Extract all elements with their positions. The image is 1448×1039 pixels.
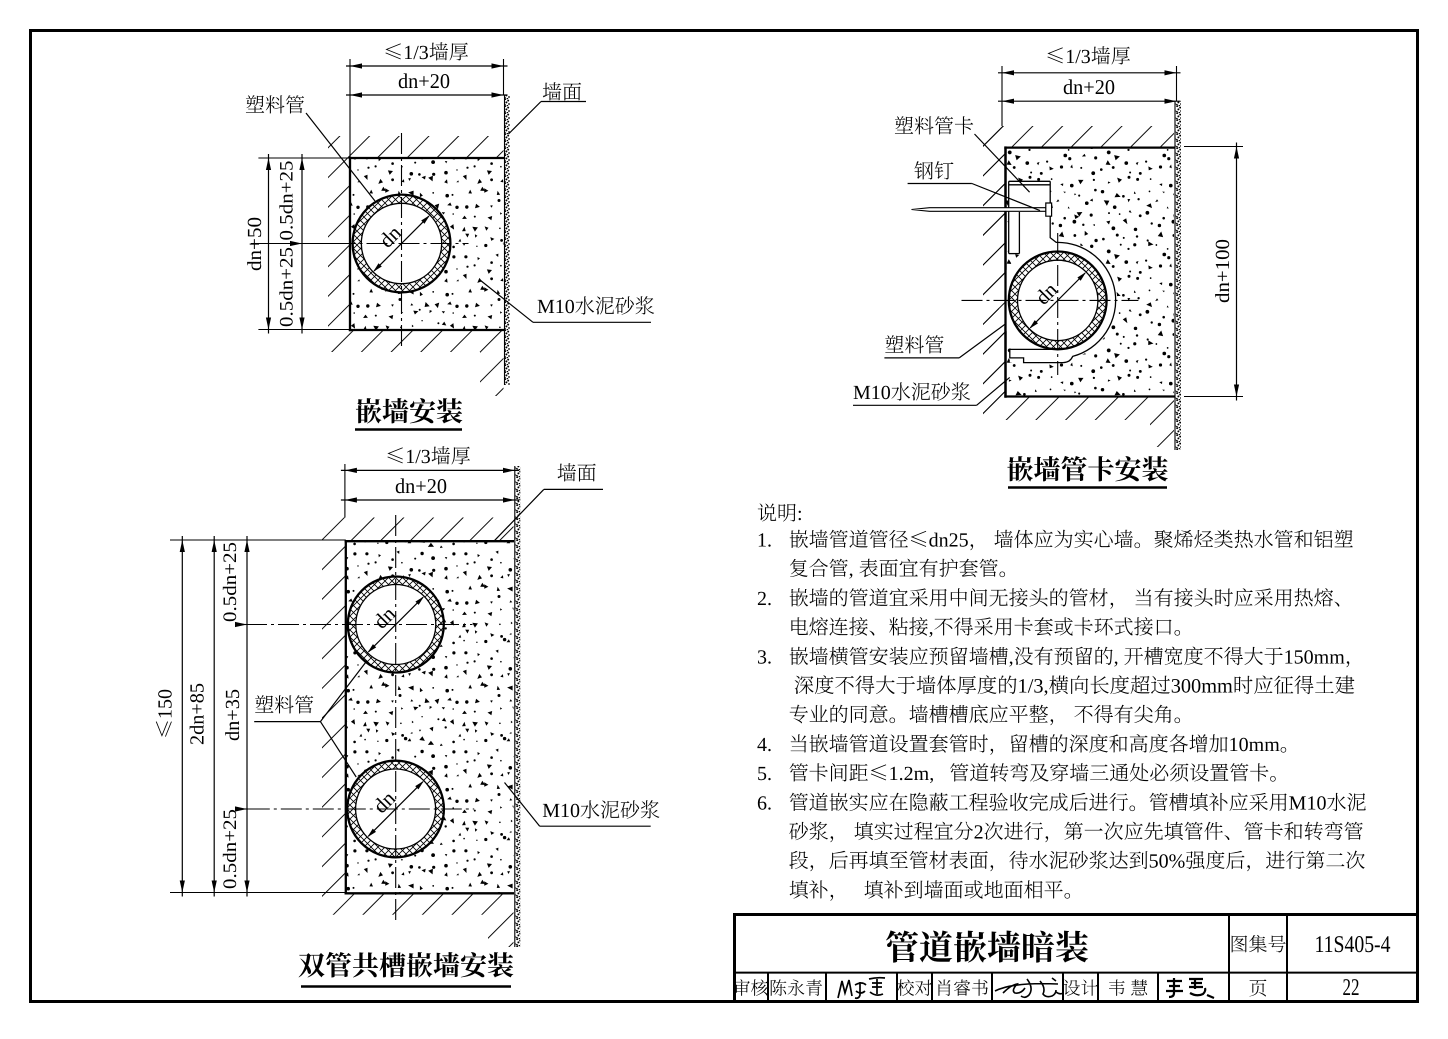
svg-text:≤1/3墙厚: ≤1/3墙厚 xyxy=(1045,40,1131,69)
svg-text:塑料管: 塑料管 xyxy=(245,89,305,118)
svg-text:电熔连接、粘接,不得采用卡套或卡环式接口。: 电熔连接、粘接,不得采用卡套或卡环式接口。 xyxy=(789,611,1194,640)
svg-text:dn+20: dn+20 xyxy=(1063,75,1115,99)
svg-text:管道嵌实应在隐蔽工程验收完成后进行。管槽填补应采用M10水泥: 管道嵌实应在隐蔽工程验收完成后进行。管槽填补应采用M10水泥 xyxy=(789,786,1367,815)
svg-text:11S405-4: 11S405-4 xyxy=(1315,932,1391,958)
svg-text:当嵌墙管道设置套管时，留槽的深度和高度各增加10mm。: 当嵌墙管道设置套管时，留槽的深度和高度各增加10mm。 xyxy=(789,728,1300,757)
svg-text:1.: 1. xyxy=(757,530,772,552)
svg-text:砂浆， 填实过程宜分2次进行，第一次应先填管件、管卡和转弯管: 砂浆， 填实过程宜分2次进行，第一次应先填管件、管卡和转弯管 xyxy=(789,816,1364,845)
svg-text:设计: 设计 xyxy=(1063,975,1099,1001)
svg-text:2dn+85: 2dn+85 xyxy=(187,683,209,745)
svg-text:嵌墙的管道宜采用中间无接头的管材， 当有接头时应采用热熔、: 嵌墙的管道宜采用中间无接头的管材， 当有接头时应采用热熔、 xyxy=(789,582,1354,611)
svg-text:0.5dn+25: 0.5dn+25 xyxy=(220,809,241,889)
svg-text:专业的同意。墙槽槽底应平整， 不得有尖角。: 专业的同意。墙槽槽底应平整， 不得有尖角。 xyxy=(789,699,1194,728)
svg-text:嵌墙横管安装应预留墙槽,没有预留的, 开槽宽度不得大于150: 嵌墙横管安装应预留墙槽,没有预留的, 开槽宽度不得大于150mm， xyxy=(789,640,1365,669)
svg-text:图集号: 图集号 xyxy=(1229,930,1286,957)
svg-text:嵌墙安装: 嵌墙安装 xyxy=(355,390,463,429)
svg-text:≤1/3墙厚: ≤1/3墙厚 xyxy=(385,440,471,469)
svg-text:复合管, 表面宜有护套管。: 复合管, 表面宜有护套管。 xyxy=(789,553,1019,582)
svg-text:5.: 5. xyxy=(757,763,772,785)
svg-text:M10水泥砂浆: M10水泥砂浆 xyxy=(853,376,971,405)
svg-text:M10水泥砂浆: M10水泥砂浆 xyxy=(537,290,655,319)
svg-text:dn+20: dn+20 xyxy=(398,69,450,93)
svg-text:墙面: 墙面 xyxy=(542,76,582,105)
svg-text:0.5dn+25: 0.5dn+25 xyxy=(277,161,298,241)
svg-text:陈永青: 陈永青 xyxy=(769,975,823,1001)
svg-text:dn+100: dn+100 xyxy=(1212,239,1234,303)
svg-text:0.5dn+25: 0.5dn+25 xyxy=(220,542,241,622)
svg-text:塑料管: 塑料管 xyxy=(254,689,314,718)
svg-text:dn+35: dn+35 xyxy=(222,689,244,741)
svg-text:填补， 填补到墙面或地面相平。: 填补， 填补到墙面或地面相平。 xyxy=(789,874,1084,903)
svg-text:肖睿书: 肖睿书 xyxy=(935,975,989,1001)
svg-text:说明:: 说明: xyxy=(757,497,803,526)
svg-text:段，后再填至管材表面，待水泥砂浆达到50%强度后，进行第二次: 段，后再填至管材表面，待水泥砂浆达到50%强度后，进行第二次 xyxy=(789,845,1366,874)
svg-text:M10水泥砂浆: M10水泥砂浆 xyxy=(542,794,660,823)
svg-text:墙面: 墙面 xyxy=(557,457,597,486)
svg-text:塑料管卡: 塑料管卡 xyxy=(894,110,974,139)
svg-text:≤1/3墙厚: ≤1/3墙厚 xyxy=(383,36,469,65)
svg-text:嵌墙管道管径≤dn25， 墙体应为实心墙。聚烯烃类热水管和铝: 嵌墙管道管径≤dn25， 墙体应为实心墙。聚烯烃类热水管和铝塑 xyxy=(789,524,1354,553)
svg-text:深度不得大于墙体厚度的1/3,横向长度超过300mm时应征得: 深度不得大于墙体厚度的1/3,横向长度超过300mm时应征得土建 xyxy=(789,670,1355,699)
svg-text:管卡间距≤1.2m, 管道转弯及穿墙三通处必须设置管卡。: 管卡间距≤1.2m, 管道转弯及穿墙三通处必须设置管卡。 xyxy=(789,757,1290,786)
svg-text:钢钉: 钢钉 xyxy=(914,155,954,184)
svg-text:0.5dn+25: 0.5dn+25 xyxy=(277,247,298,327)
svg-text:3.: 3. xyxy=(757,646,772,668)
svg-text:双管共槽嵌墙安装: 双管共槽嵌墙安装 xyxy=(298,944,514,983)
svg-text:dn+20: dn+20 xyxy=(395,474,447,498)
svg-text:2.: 2. xyxy=(757,588,772,610)
svg-text:4.: 4. xyxy=(757,734,772,756)
svg-text:22: 22 xyxy=(1343,975,1360,1001)
svg-text:韦 慧: 韦 慧 xyxy=(1108,975,1149,1001)
svg-text:校对: 校对 xyxy=(897,975,933,1001)
svg-text:页: 页 xyxy=(1248,974,1267,1001)
svg-text:嵌墙管卡安装: 嵌墙管卡安装 xyxy=(1007,448,1169,487)
svg-text:管道嵌墙暗装: 管道嵌墙暗装 xyxy=(885,921,1089,970)
svg-text:≤150: ≤150 xyxy=(149,689,178,739)
svg-text:审核: 审核 xyxy=(733,975,769,1001)
svg-text:6.: 6. xyxy=(757,792,772,814)
svg-text:塑料管: 塑料管 xyxy=(884,329,944,358)
